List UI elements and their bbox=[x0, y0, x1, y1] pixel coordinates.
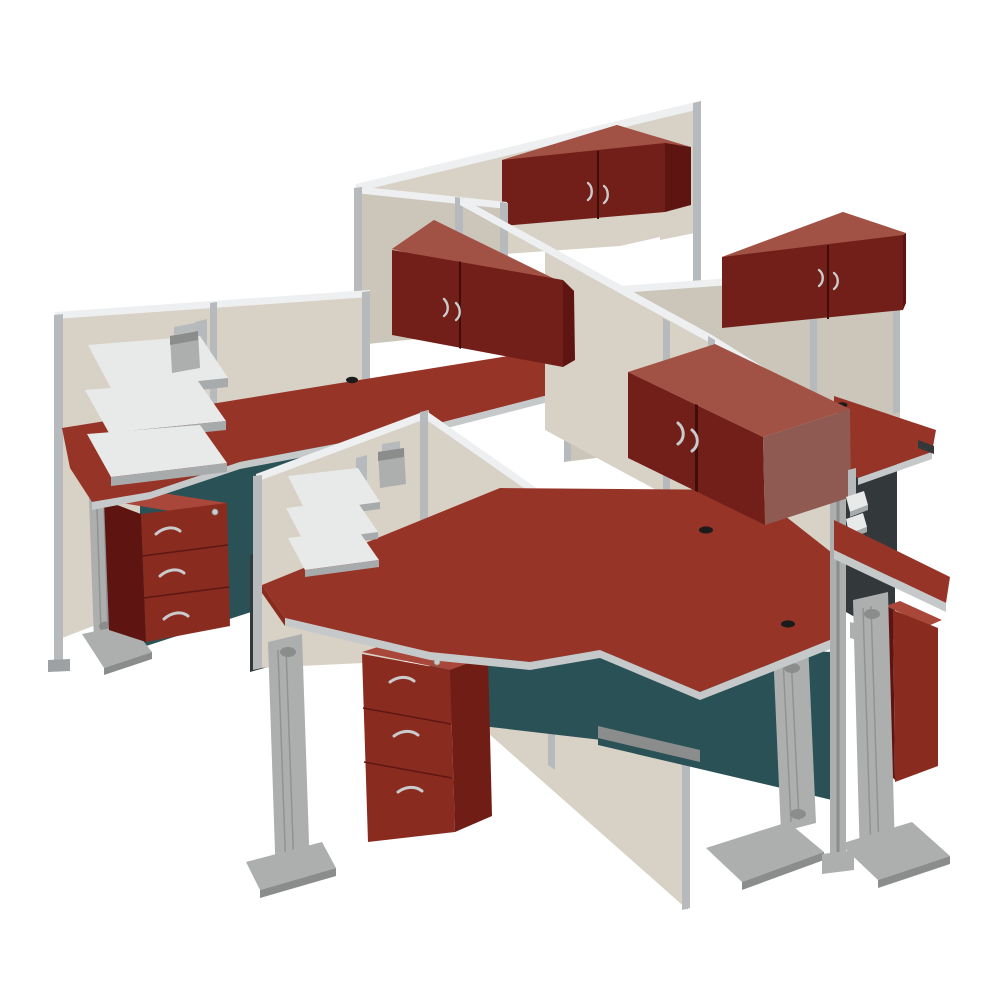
leg-foot bbox=[840, 822, 950, 880]
pedestal-side bbox=[104, 500, 146, 642]
hutch-side bbox=[563, 280, 575, 367]
pedestal-side bbox=[450, 656, 492, 832]
hutch-door-seam bbox=[459, 261, 461, 349]
mobile-pedestal bbox=[104, 490, 230, 642]
leg-column bbox=[853, 592, 895, 862]
hutch-doors bbox=[392, 250, 563, 367]
hutch-door-seam bbox=[827, 245, 829, 319]
leg-arch-cutout bbox=[790, 809, 806, 819]
panel-end-post bbox=[54, 314, 63, 667]
tray-bracket bbox=[848, 468, 856, 498]
panel-post bbox=[693, 101, 701, 305]
hutch-side bbox=[665, 143, 691, 212]
panel-foot bbox=[48, 659, 70, 672]
overhead-hutch-b bbox=[722, 212, 906, 328]
pedestal-drawers bbox=[141, 503, 230, 642]
post-foot bbox=[822, 850, 854, 874]
cable-grommet bbox=[699, 526, 713, 533]
workstation-a-paper-trays bbox=[85, 319, 228, 486]
leg-foot bbox=[706, 822, 824, 882]
hutch-door-seam bbox=[597, 151, 599, 219]
pedestal-drawers bbox=[362, 654, 455, 842]
leg-arch-cutout bbox=[280, 647, 296, 657]
mobile-pedestal bbox=[362, 640, 492, 842]
pedestal-lock bbox=[212, 509, 218, 515]
panel-end-post bbox=[253, 475, 262, 670]
t-leg-left bbox=[246, 634, 336, 898]
cubicle-cluster-render bbox=[0, 0, 1000, 1000]
overhead-hutch-a bbox=[502, 125, 691, 226]
hutch-side bbox=[903, 233, 906, 310]
cable-grommet bbox=[781, 620, 795, 627]
leg-column bbox=[268, 634, 310, 882]
leg-arch-cutout bbox=[864, 609, 880, 619]
product-photo-canvas bbox=[0, 0, 1000, 1000]
cable-grommet bbox=[346, 377, 358, 383]
mobile-pedestal-side bbox=[886, 601, 942, 782]
pedestal-side bbox=[893, 610, 938, 782]
